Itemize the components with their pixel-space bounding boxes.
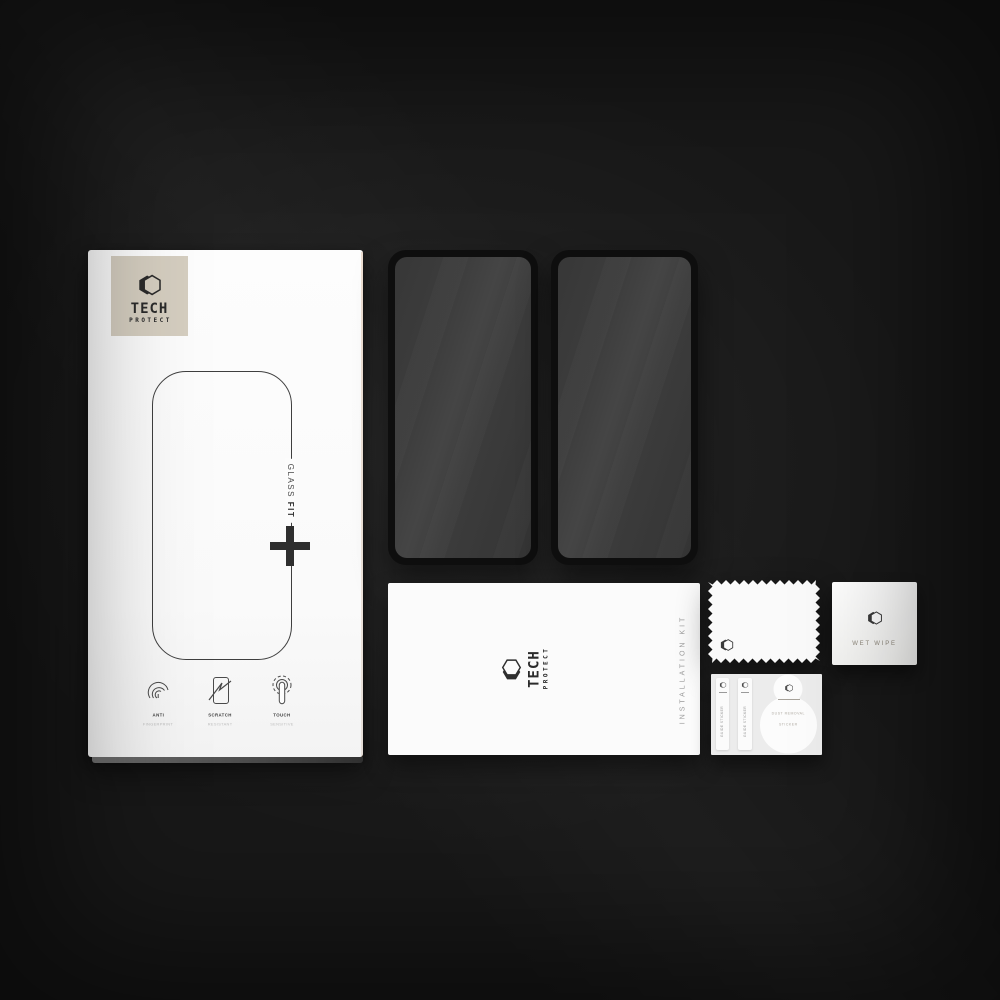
box-bottom-edge <box>92 757 363 763</box>
feature-subtitle: SENSITIVE <box>270 722 294 726</box>
dry-wipe-wrapper <box>708 580 820 663</box>
hexagon-logo-icon <box>499 656 525 682</box>
brand-logo-tile: TECH PROTECT <box>111 256 188 336</box>
glass-protector-left <box>388 250 538 565</box>
dust-removal-label-line1: DUST REMOVAL <box>772 712 805 717</box>
installation-kit-card: TECH PROTECT INSTALLATION KIT <box>388 583 700 755</box>
sticker-sheet-card: GUIDE STICKER GUIDE STICKER DUST REMOVAL… <box>711 674 822 755</box>
guide-sticker-label: GUIDE STICKER <box>743 706 746 737</box>
fingerprint-icon <box>143 674 173 708</box>
scratch-icon <box>205 674 235 708</box>
feature-title: SCRATCH <box>208 713 232 719</box>
wet-wipe-packet: WET WIPE <box>832 582 917 665</box>
fit-word: FIT <box>287 502 296 519</box>
divider <box>778 699 800 700</box>
hexagon-logo-icon <box>719 681 727 689</box>
hexagon-logo-icon <box>784 683 794 693</box>
feature-touch-sensitive: TOUCH SENSITIVE <box>251 674 313 728</box>
wet-wipe-label: WET WIPE <box>852 641 897 647</box>
dust-removal-sticker: DUST REMOVAL STICKER <box>757 674 820 755</box>
hexagon-logo-icon <box>719 637 735 653</box>
plus-icon <box>270 526 310 566</box>
brand-name: TECH <box>131 302 169 316</box>
hexagon-logo-icon <box>866 609 884 627</box>
kit-brand-lockup: TECH PROTECT <box>499 647 550 692</box>
phone-outline <box>152 371 292 660</box>
touch-icon <box>267 674 297 708</box>
dry-wipe-cloth <box>708 580 820 663</box>
feature-title: TOUCH <box>273 713 290 719</box>
feature-anti-fingerprint: ANTI FINGERPRINT <box>127 674 189 728</box>
glass-screen <box>558 257 691 558</box>
feature-title: ANTI <box>152 713 164 719</box>
guide-sticker-strip: GUIDE STICKER <box>738 678 752 750</box>
hexagon-logo-icon <box>136 271 164 299</box>
hexagon-logo-icon <box>741 681 749 689</box>
glass-protector-right <box>551 250 698 565</box>
box-right-edge <box>361 252 363 757</box>
product-photo-stage: TECH PROTECT GLASS FIT ANTI FINGERPRINT <box>0 0 1000 1000</box>
brand-subname: PROTECT <box>129 318 172 324</box>
glass-word: GLASS <box>287 464 296 498</box>
feature-scratch-resistant: SCRATCH RESISTANT <box>189 674 251 728</box>
brand-name: TECH <box>528 650 542 688</box>
retail-box: TECH PROTECT GLASS FIT ANTI FINGERPRINT <box>88 250 363 757</box>
feature-subtitle: FINGERPRINT <box>143 722 173 726</box>
glass-screen <box>395 257 531 558</box>
feature-subtitle: RESISTANT <box>208 722 233 726</box>
glass-fit-label: GLASS FIT <box>277 453 304 529</box>
dust-removal-label-line2: STICKER <box>772 722 805 727</box>
brand-subname: PROTECT <box>544 647 550 690</box>
